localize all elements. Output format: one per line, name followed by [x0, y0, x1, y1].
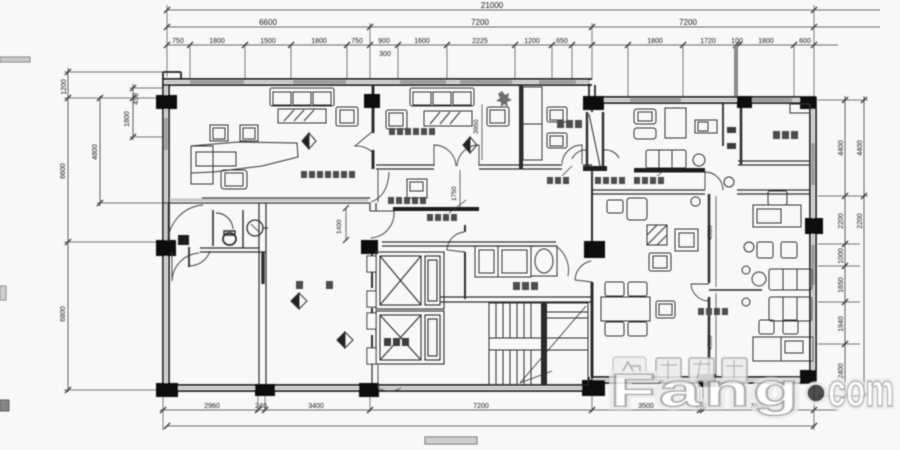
svg-text:2225: 2225	[472, 38, 488, 45]
svg-text:1650: 1650	[838, 277, 845, 293]
svg-text:1800: 1800	[758, 38, 774, 45]
svg-text:7200: 7200	[471, 18, 489, 27]
svg-text:3950: 3950	[473, 119, 480, 134]
svg-text:4400: 4400	[838, 140, 845, 156]
svg-text:6600: 6600	[60, 163, 67, 179]
svg-text:1800: 1800	[311, 38, 327, 45]
svg-text:3400: 3400	[308, 403, 324, 410]
svg-text:900: 900	[378, 38, 390, 45]
svg-text:7200: 7200	[679, 18, 697, 27]
svg-text:2960: 2960	[204, 403, 220, 410]
svg-text:1600: 1600	[414, 38, 430, 45]
svg-text:750: 750	[351, 38, 363, 45]
svg-text:450: 450	[133, 93, 140, 105]
svg-text:com: com	[828, 364, 894, 416]
svg-text:1500: 1500	[260, 38, 276, 45]
svg-text:4500: 4500	[707, 225, 714, 240]
svg-text:4800: 4800	[92, 144, 99, 160]
svg-text:1940: 1940	[838, 316, 845, 332]
svg-text:Fang: Fang	[610, 364, 802, 416]
svg-text:1000: 1000	[838, 248, 845, 264]
svg-text:750: 750	[172, 38, 184, 45]
svg-text:1200: 1200	[61, 79, 68, 95]
svg-text:1800: 1800	[209, 38, 225, 45]
svg-text:2200: 2200	[857, 213, 864, 229]
svg-text:6800: 6800	[60, 306, 67, 322]
svg-text:650: 650	[556, 38, 568, 45]
svg-text:4500: 4500	[707, 335, 714, 350]
svg-text:600: 600	[799, 38, 811, 45]
svg-text:1720: 1720	[700, 38, 716, 45]
svg-text:100: 100	[731, 38, 743, 45]
svg-text:4400: 4400	[857, 140, 864, 156]
svg-text:7200: 7200	[473, 403, 489, 410]
svg-text:1400: 1400	[336, 219, 343, 234]
svg-text:1750: 1750	[451, 186, 458, 201]
svg-text:240: 240	[255, 403, 267, 410]
svg-text:2200: 2200	[838, 213, 845, 229]
svg-text:6600: 6600	[259, 18, 277, 27]
svg-text:300: 300	[379, 51, 391, 58]
svg-text:1800: 1800	[647, 38, 663, 45]
svg-text:1800: 1800	[124, 111, 131, 127]
svg-text:21000: 21000	[481, 1, 504, 10]
svg-text:1200: 1200	[524, 38, 540, 45]
